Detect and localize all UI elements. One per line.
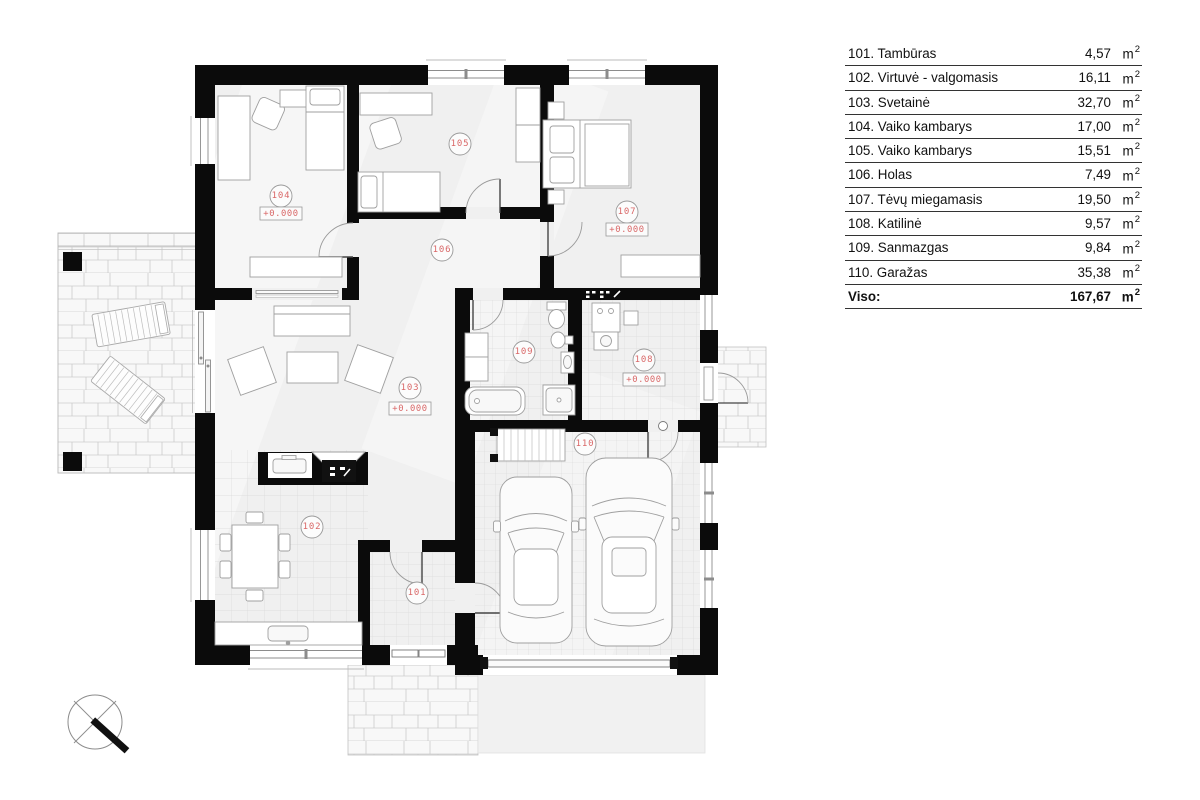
room-area: 4,57 [1059,47,1111,60]
room-area: 32,70 [1059,96,1111,109]
room-area: 15,51 [1059,144,1111,157]
unit [624,311,638,325]
dining-table [232,525,278,588]
bidet [551,332,565,348]
nightstand [548,102,564,119]
toilet-bowl [549,310,565,329]
area-unit: m2 [1111,289,1140,304]
chair [246,512,263,523]
dresser [621,255,700,277]
room-label-110: 110 [574,433,596,455]
room-name: 110. Garažas [848,266,1059,279]
legend-row: 108. Katilinė 9,57 m2 [845,212,1142,236]
area-unit: m2 [1111,95,1140,110]
svg-text:105: 105 [451,139,470,149]
svg-text:+0.000: +0.000 [392,404,427,414]
chair [279,561,290,578]
area-unit: m2 [1111,265,1140,280]
svg-text:106: 106 [433,245,452,255]
room-label-106: 106 [431,239,453,261]
compass-needle [90,717,129,753]
window-left-102 [191,528,215,602]
room-label-102: 102 [301,516,323,538]
room-name: 103. Svetainė [848,96,1059,109]
terrace-column [63,452,82,471]
svg-text:107: 107 [618,207,637,217]
area-unit: m2 [1111,168,1140,183]
boiler [592,303,620,332]
legend-row: 107. Tėvų miegamasis 19,50 m2 [845,188,1142,212]
area-unit: m2 [1111,216,1140,231]
car-sedan [494,477,579,643]
total-area: 167,67 [1059,290,1111,303]
legend-row: 105. Vaiko kambarys 15,51 m2 [845,139,1142,163]
terrace-left [58,233,197,473]
window-left-104 [191,116,215,166]
svg-text:108: 108 [635,355,654,365]
area-unit: m2 [1111,192,1140,207]
legend-row: 106. Holas 7,49 m2 [845,163,1142,187]
svg-text:+0.000: +0.000 [263,209,298,219]
window-bottom-102 [248,645,364,669]
area-legend: 101. Tambūras 4,57 m2 102. Virtuvė - val… [845,42,1142,309]
island-sink [273,459,306,473]
terrace-column [63,252,82,271]
pillow [310,89,340,105]
chair [246,590,263,601]
legend-row: 101. Tambūras 4,57 m2 [845,42,1142,66]
legend-total-row: Viso: 167,67 m2 [845,285,1142,309]
room-name: 107. Tėvų miegamasis [848,193,1059,206]
desk [218,96,250,180]
room-name: 104. Vaiko kambarys [848,120,1059,133]
garage-door [480,655,678,675]
svg-text:101: 101 [408,588,427,598]
svg-text:+0.000: +0.000 [609,225,644,235]
car-suv [579,458,679,646]
room-name: 108. Katilinė [848,217,1059,230]
blanket [585,124,629,186]
area-unit: m2 [1111,241,1140,256]
legend-row: 104. Vaiko kambarys 17,00 m2 [845,115,1142,139]
room-label-109: 109 [513,341,535,363]
driveway [478,675,705,753]
room-name: 105. Vaiko kambarys [848,144,1059,157]
side-stoop [712,347,766,447]
window-top-107 [567,60,647,85]
room-name: 109. Sanmazgas [848,241,1059,254]
cabinet [465,333,488,357]
room-area: 16,11 [1059,71,1111,84]
room-area: 17,00 [1059,120,1111,133]
pillow [550,157,574,183]
svg-text:109: 109 [515,347,534,357]
desk [360,93,432,115]
room-area: 7,49 [1059,168,1111,181]
svg-text:102: 102 [303,522,322,532]
counter-sink [268,626,308,641]
legend-row: 103. Svetainė 32,70 m2 [845,91,1142,115]
north-compass [68,695,129,753]
sliding-door-terrace [193,310,216,413]
nightstand [548,190,564,204]
room-label-105: 105 [449,133,471,155]
svg-text:104: 104 [272,191,291,201]
total-label: Viso: [848,290,1059,303]
sofa [274,306,350,336]
window-right-garage-2 [700,550,718,608]
room-name: 101. Tambūras [848,47,1059,60]
shelf [280,90,310,107]
chair [220,561,231,578]
window-right-108 [700,295,718,330]
coffee-table [287,352,338,383]
svg-text:110: 110 [576,439,595,449]
room-name: 102. Virtuvė - valgomasis [848,71,1059,84]
storage-rack [497,429,565,461]
window-top-105 [426,60,506,85]
room-area: 9,57 [1059,217,1111,230]
svg-text:103: 103 [401,383,420,393]
dresser [250,257,342,277]
room-area: 19,50 [1059,193,1111,206]
area-unit: m2 [1111,71,1140,86]
area-unit: m2 [1111,119,1140,134]
entry-double-door [390,645,447,665]
pillow [550,126,574,153]
room-label-101: 101 [406,582,428,604]
area-unit: m2 [1111,46,1140,61]
svg-text:+0.000: +0.000 [626,375,661,385]
entry-walkway [348,665,478,755]
legend-row: 110. Garažas 35,38 m2 [845,261,1142,285]
floorplan-page: 104 +0.000 105 106 107 +0.000 103 +0.000… [0,0,1200,800]
cooktop [322,460,356,482]
chair [220,534,231,551]
room-area: 35,38 [1059,266,1111,279]
pillow [361,176,377,208]
floor-plan: 104 +0.000 105 106 107 +0.000 103 +0.000… [0,0,840,800]
cabinet [465,357,488,381]
area-unit: m2 [1111,143,1140,158]
window-right-garage-1 [700,463,718,523]
legend-row: 109. Sanmazgas 9,84 m2 [845,236,1142,260]
chair [279,534,290,551]
room-name: 106. Holas [848,168,1059,181]
legend-row: 102. Virtuvė - valgomasis 16,11 m2 [845,66,1142,90]
room-area: 9,84 [1059,241,1111,254]
toilet-tank [547,302,566,310]
